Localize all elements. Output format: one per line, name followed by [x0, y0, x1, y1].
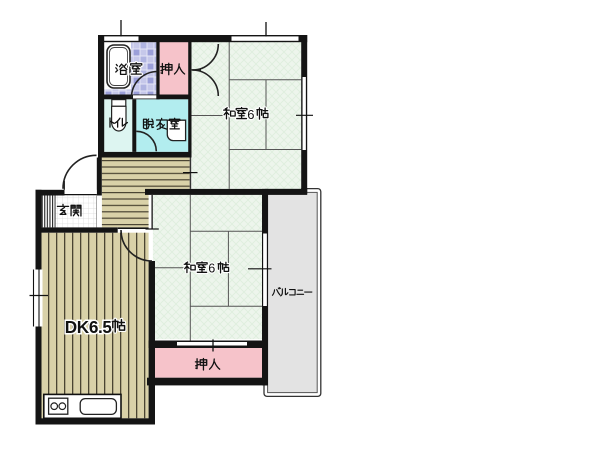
svg-text:6: 6	[247, 107, 254, 122]
svg-text:6: 6	[208, 262, 215, 276]
svg-text:DK6.5: DK6.5	[65, 317, 113, 337]
